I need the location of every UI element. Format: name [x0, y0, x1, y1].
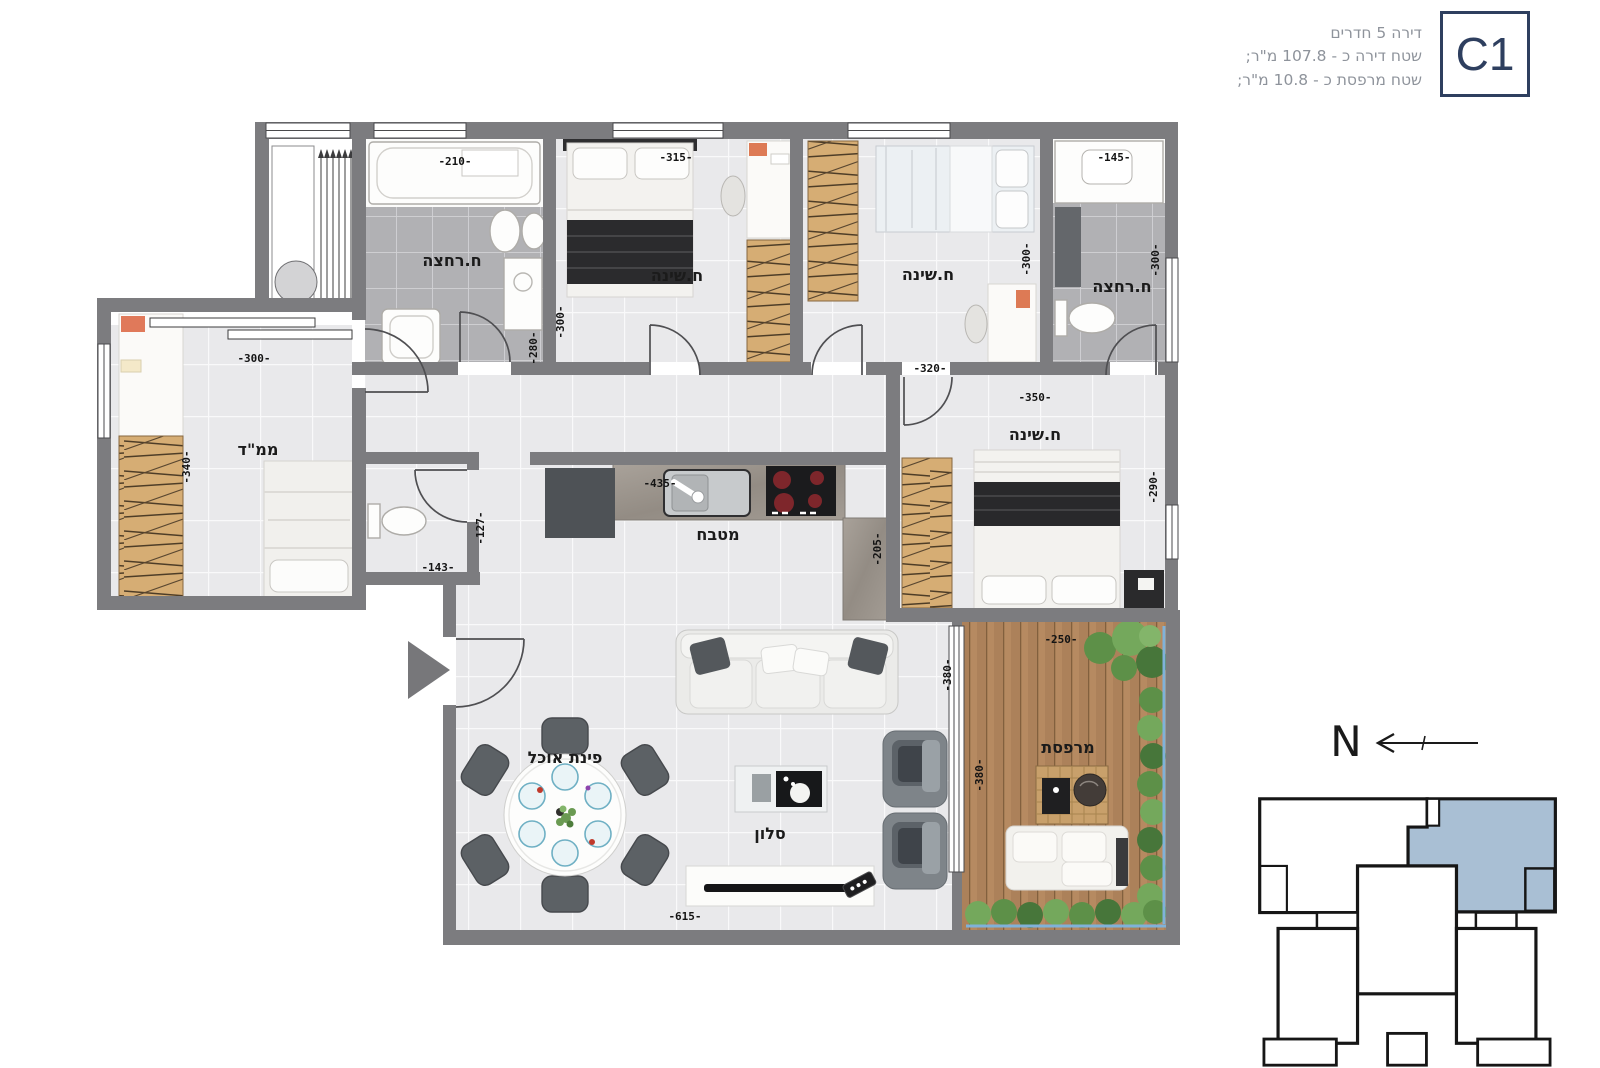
dim: -320-	[913, 362, 946, 375]
pillow	[996, 150, 1028, 187]
dim: -210-	[438, 155, 471, 168]
dim: -315-	[659, 151, 692, 164]
pillow	[982, 576, 1046, 604]
label-bathroom1: ח.רחצה	[422, 251, 481, 270]
label-master-bedroom: ח.שינה	[1009, 425, 1061, 444]
wardrobe	[747, 240, 793, 362]
keyplan-block-lower-right	[1456, 928, 1535, 1043]
armchair	[883, 813, 947, 889]
dining-chair	[542, 876, 588, 912]
wardrobe	[902, 458, 952, 608]
dim: -300-	[237, 352, 270, 365]
dim: -350-	[1018, 391, 1051, 404]
pillow	[573, 148, 627, 179]
keyplan-block-center	[1358, 866, 1457, 994]
tall-cabinet	[1055, 207, 1081, 287]
label-balcony: מרפסת	[1041, 738, 1095, 757]
label-bedroom1: ח.שינה	[651, 266, 703, 285]
keyplan-block-bottom-center	[1388, 1033, 1427, 1065]
dim: -300-	[554, 305, 567, 338]
fridge	[545, 468, 615, 538]
bidet	[522, 213, 546, 249]
toilet	[490, 210, 520, 252]
table-decor	[752, 774, 771, 802]
exterior-mask-2	[97, 610, 366, 945]
vanity-cabinet	[504, 258, 542, 330]
sliding-window-track	[150, 318, 315, 327]
wardrobe	[119, 436, 183, 598]
desk-chair	[721, 176, 745, 216]
toilet	[1069, 303, 1115, 333]
desk	[119, 314, 183, 436]
dim: -380-	[973, 758, 986, 791]
dim: -340-	[180, 450, 193, 483]
outdoor-table	[1036, 766, 1108, 824]
dim: -380-	[941, 658, 954, 691]
dim: -143-	[421, 561, 454, 574]
dim: -280-	[527, 331, 540, 364]
label-bedroom2: ח.שינה	[902, 265, 954, 284]
dim: -435-	[643, 477, 676, 490]
label-dining: פינת אוכל	[528, 748, 603, 767]
dim: -205-	[871, 532, 884, 565]
dim: -615-	[668, 910, 701, 923]
building-key-plan	[1252, 796, 1562, 1068]
pillow	[1052, 576, 1116, 604]
label-living: סלון	[754, 824, 786, 843]
pillow	[270, 560, 348, 592]
wardrobe	[808, 141, 858, 301]
toilet	[382, 507, 426, 535]
dim: -290-	[1147, 470, 1160, 503]
desk-chair	[965, 305, 987, 343]
label-mamad: ממ"ד	[238, 440, 279, 459]
outdoor-sofa	[1006, 826, 1128, 890]
room-wc	[368, 504, 426, 538]
bed-blanket	[974, 482, 1120, 526]
sliding-window-track	[228, 330, 352, 339]
dim: -300-	[1149, 243, 1162, 276]
label-kitchen: מטבח	[696, 525, 739, 544]
dim: -145-	[1097, 151, 1130, 164]
label-bathroom2: ח.רחצה	[1092, 277, 1151, 296]
exterior-mask-1	[366, 585, 443, 930]
keyplan-block-lower-left	[1278, 928, 1357, 1043]
north-arrow: N	[1318, 710, 1498, 776]
stair-core-circle	[275, 261, 317, 303]
dim: -127-	[474, 511, 487, 544]
dim: -250-	[1044, 633, 1077, 646]
north-label: N	[1330, 717, 1361, 766]
tv	[704, 884, 856, 892]
pillow	[996, 191, 1028, 228]
dim: -300-	[1020, 242, 1033, 275]
armchair	[883, 731, 947, 807]
